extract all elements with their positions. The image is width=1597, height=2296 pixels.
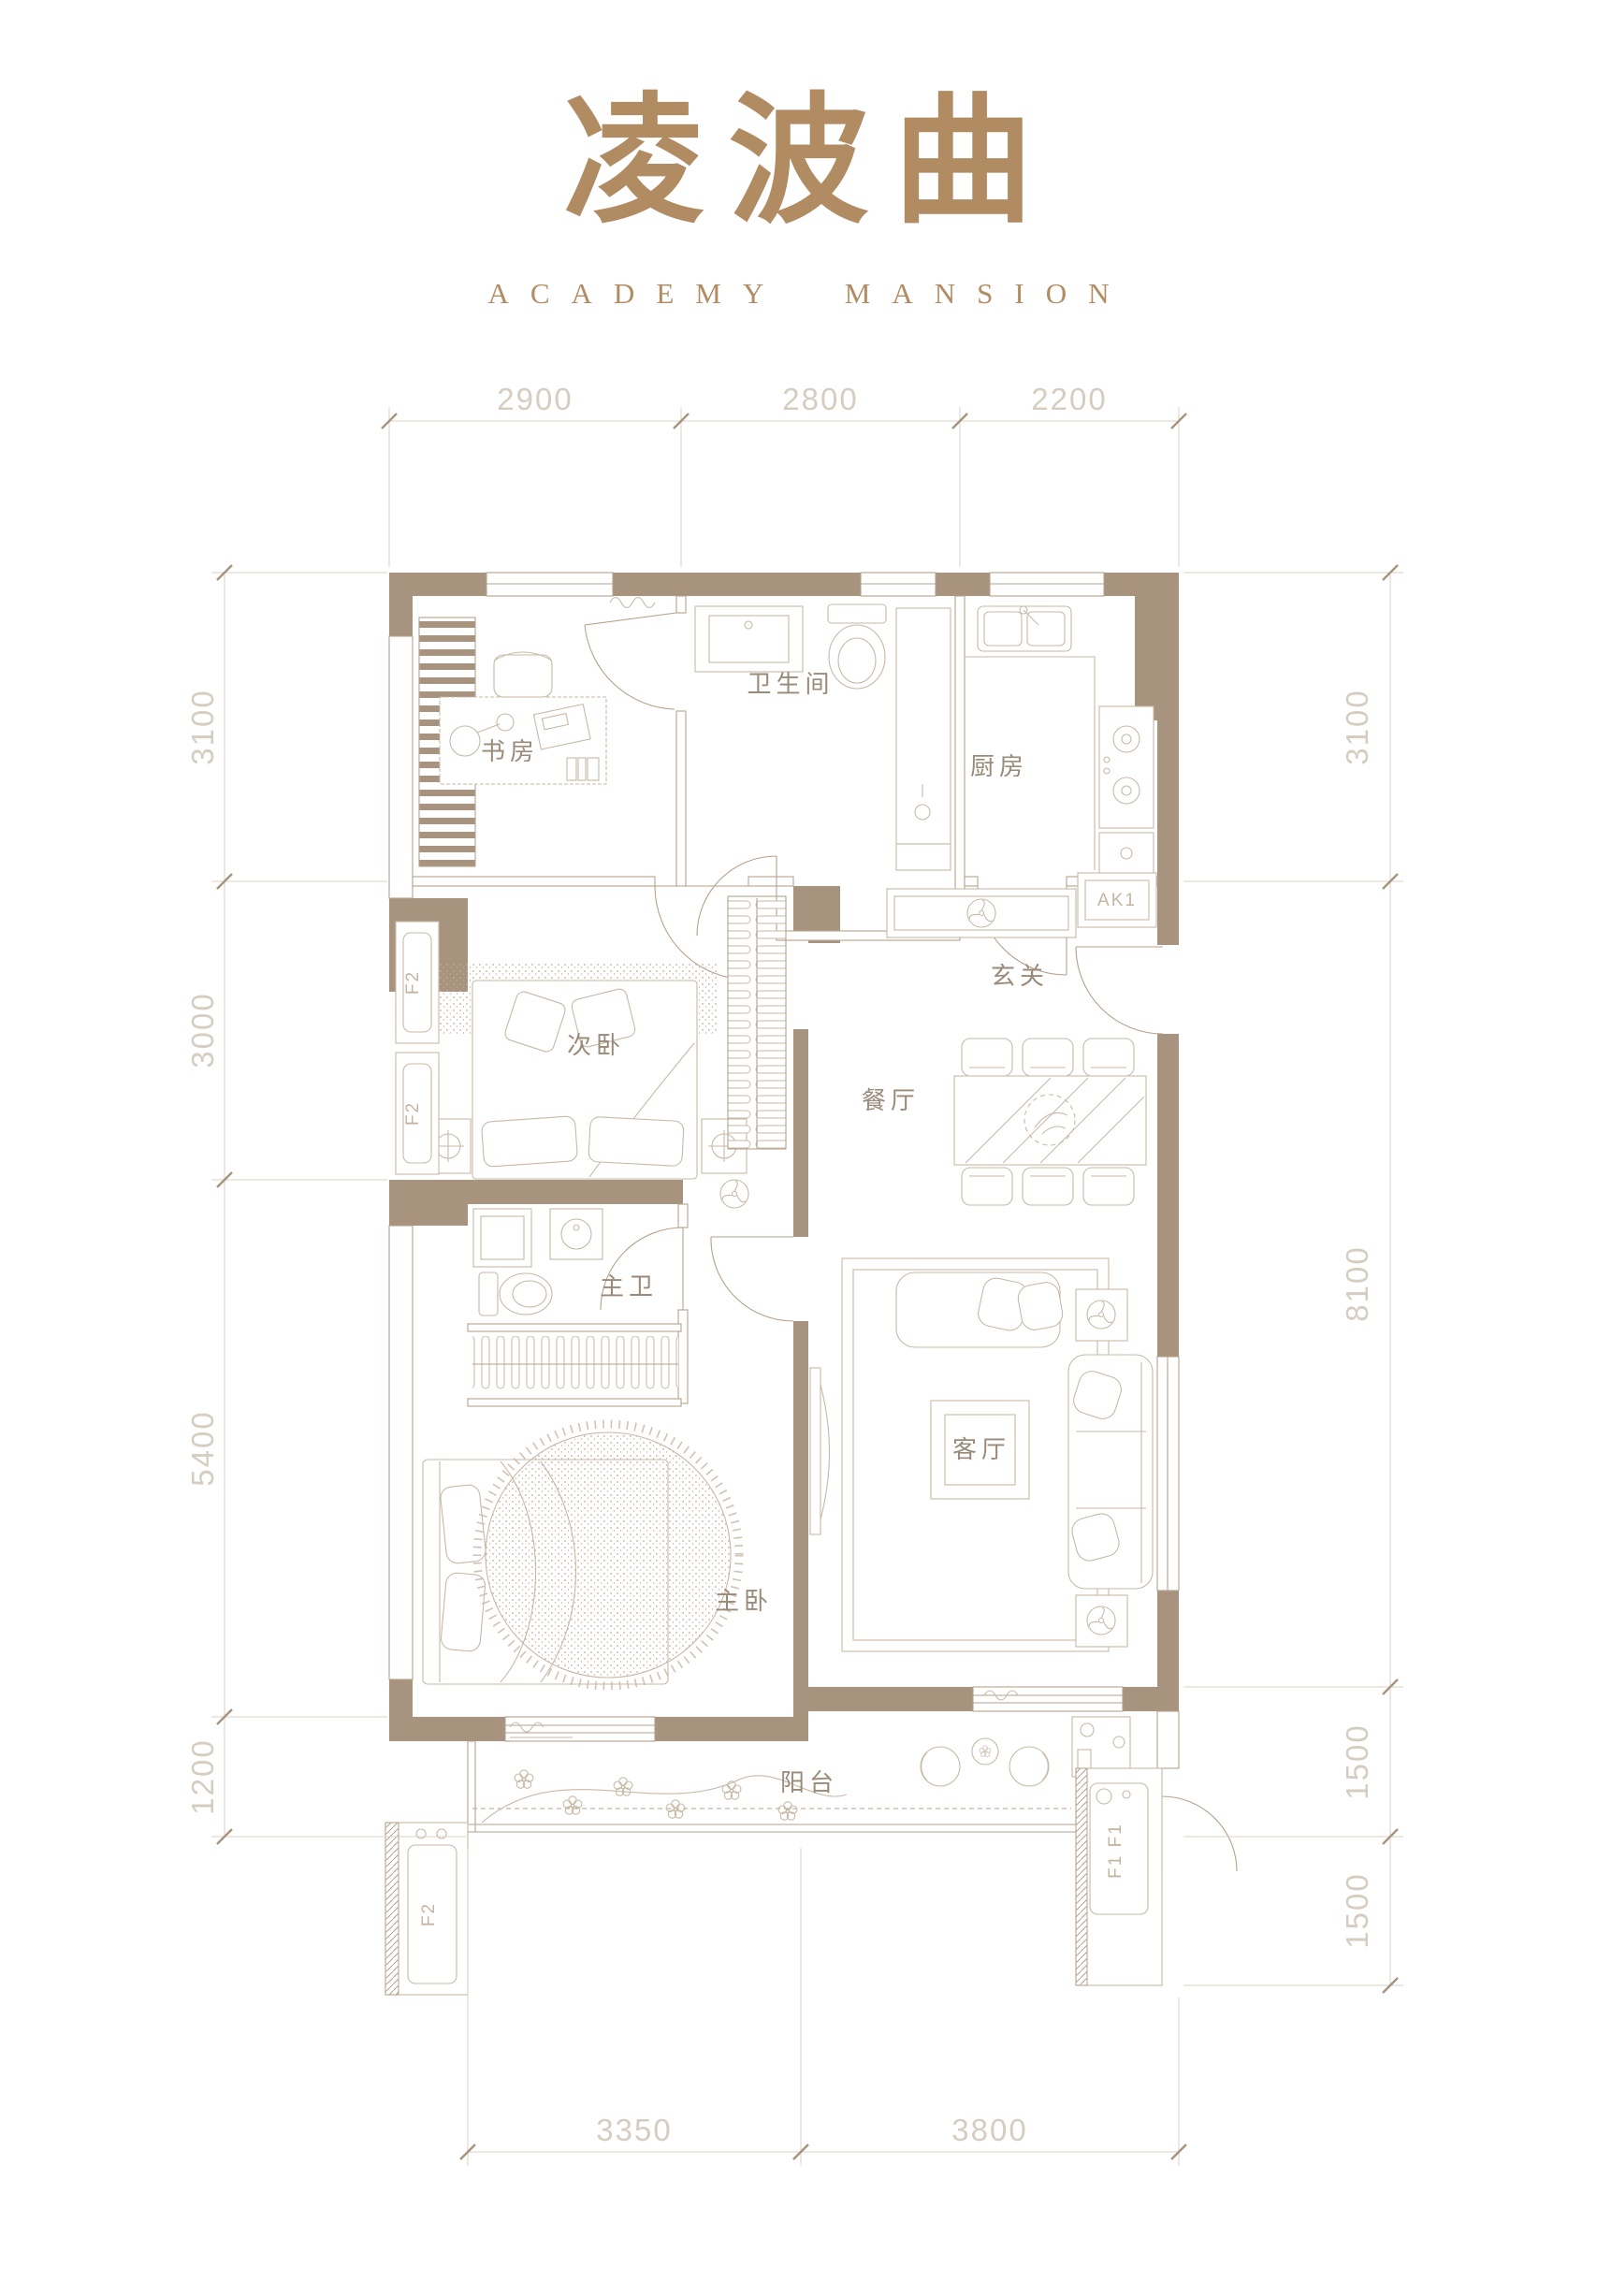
dim-top-3: 2200 xyxy=(1031,382,1107,416)
room-label-master-bath: 主卫 xyxy=(600,1272,658,1301)
room-label-study: 书房 xyxy=(481,737,539,765)
floor-plan-canvas: 书房 卫生间 厨房 次卧 玄关 餐厅 主卫 客厅 主卧 阳台 AK1 F2 xyxy=(0,0,1597,2296)
room-kitchen xyxy=(965,606,1154,875)
dim-right-3: 1500 xyxy=(1340,1723,1374,1799)
dim-left-3: 5400 xyxy=(185,1410,220,1486)
room-study xyxy=(419,598,655,867)
dim-bottom-1: 3350 xyxy=(596,2113,672,2147)
room-label-second-bedroom: 次卧 xyxy=(567,1031,625,1059)
dim-top-2: 2800 xyxy=(782,382,858,416)
room-label-dining: 餐厅 xyxy=(862,1086,920,1114)
dim-top-1: 2900 xyxy=(497,382,573,416)
dim-right-1: 3100 xyxy=(1340,689,1374,764)
dim-left-1: 3100 xyxy=(185,689,220,764)
floorplan-page: 凌波曲 ACADEMY MANSION xyxy=(0,0,1597,2296)
label-f2-upper: F2 xyxy=(403,970,423,995)
dimension-top: 2900 2800 2200 xyxy=(382,382,1186,567)
room-bathroom xyxy=(695,604,951,870)
room-label-master-bedroom: 主卧 xyxy=(715,1587,773,1615)
room-label-foyer: 玄关 xyxy=(991,962,1049,990)
room-label-living: 客厅 xyxy=(952,1435,1010,1463)
label-f2-lower: F2 xyxy=(403,1101,423,1126)
side-table-top xyxy=(1076,1289,1127,1341)
dim-left-4: 1200 xyxy=(185,1738,220,1814)
lounge-pillow-2 xyxy=(1016,1281,1065,1332)
room-label-bathroom: 卫生间 xyxy=(747,670,834,698)
room-label-kitchen: 厨房 xyxy=(970,752,1028,780)
dim-bottom-2: 3800 xyxy=(951,2113,1027,2147)
dimension-right: 3100 8100 1500 1500 xyxy=(1183,565,1403,1993)
room-master-bedroom xyxy=(423,1368,830,1737)
room-label-balcony: 阳台 xyxy=(780,1768,838,1796)
room-master-bath xyxy=(472,1209,678,1392)
side-table-bottom xyxy=(1076,1595,1127,1647)
label-f1: F1 F1 xyxy=(1106,1823,1125,1879)
dim-right-4: 1500 xyxy=(1340,1872,1374,1948)
dim-left-2: 3000 xyxy=(185,992,220,1068)
label-ak1: AK1 xyxy=(1097,891,1137,910)
dim-right-2: 8100 xyxy=(1340,1245,1374,1321)
label-f2-balcony: F2 xyxy=(419,1902,439,1926)
